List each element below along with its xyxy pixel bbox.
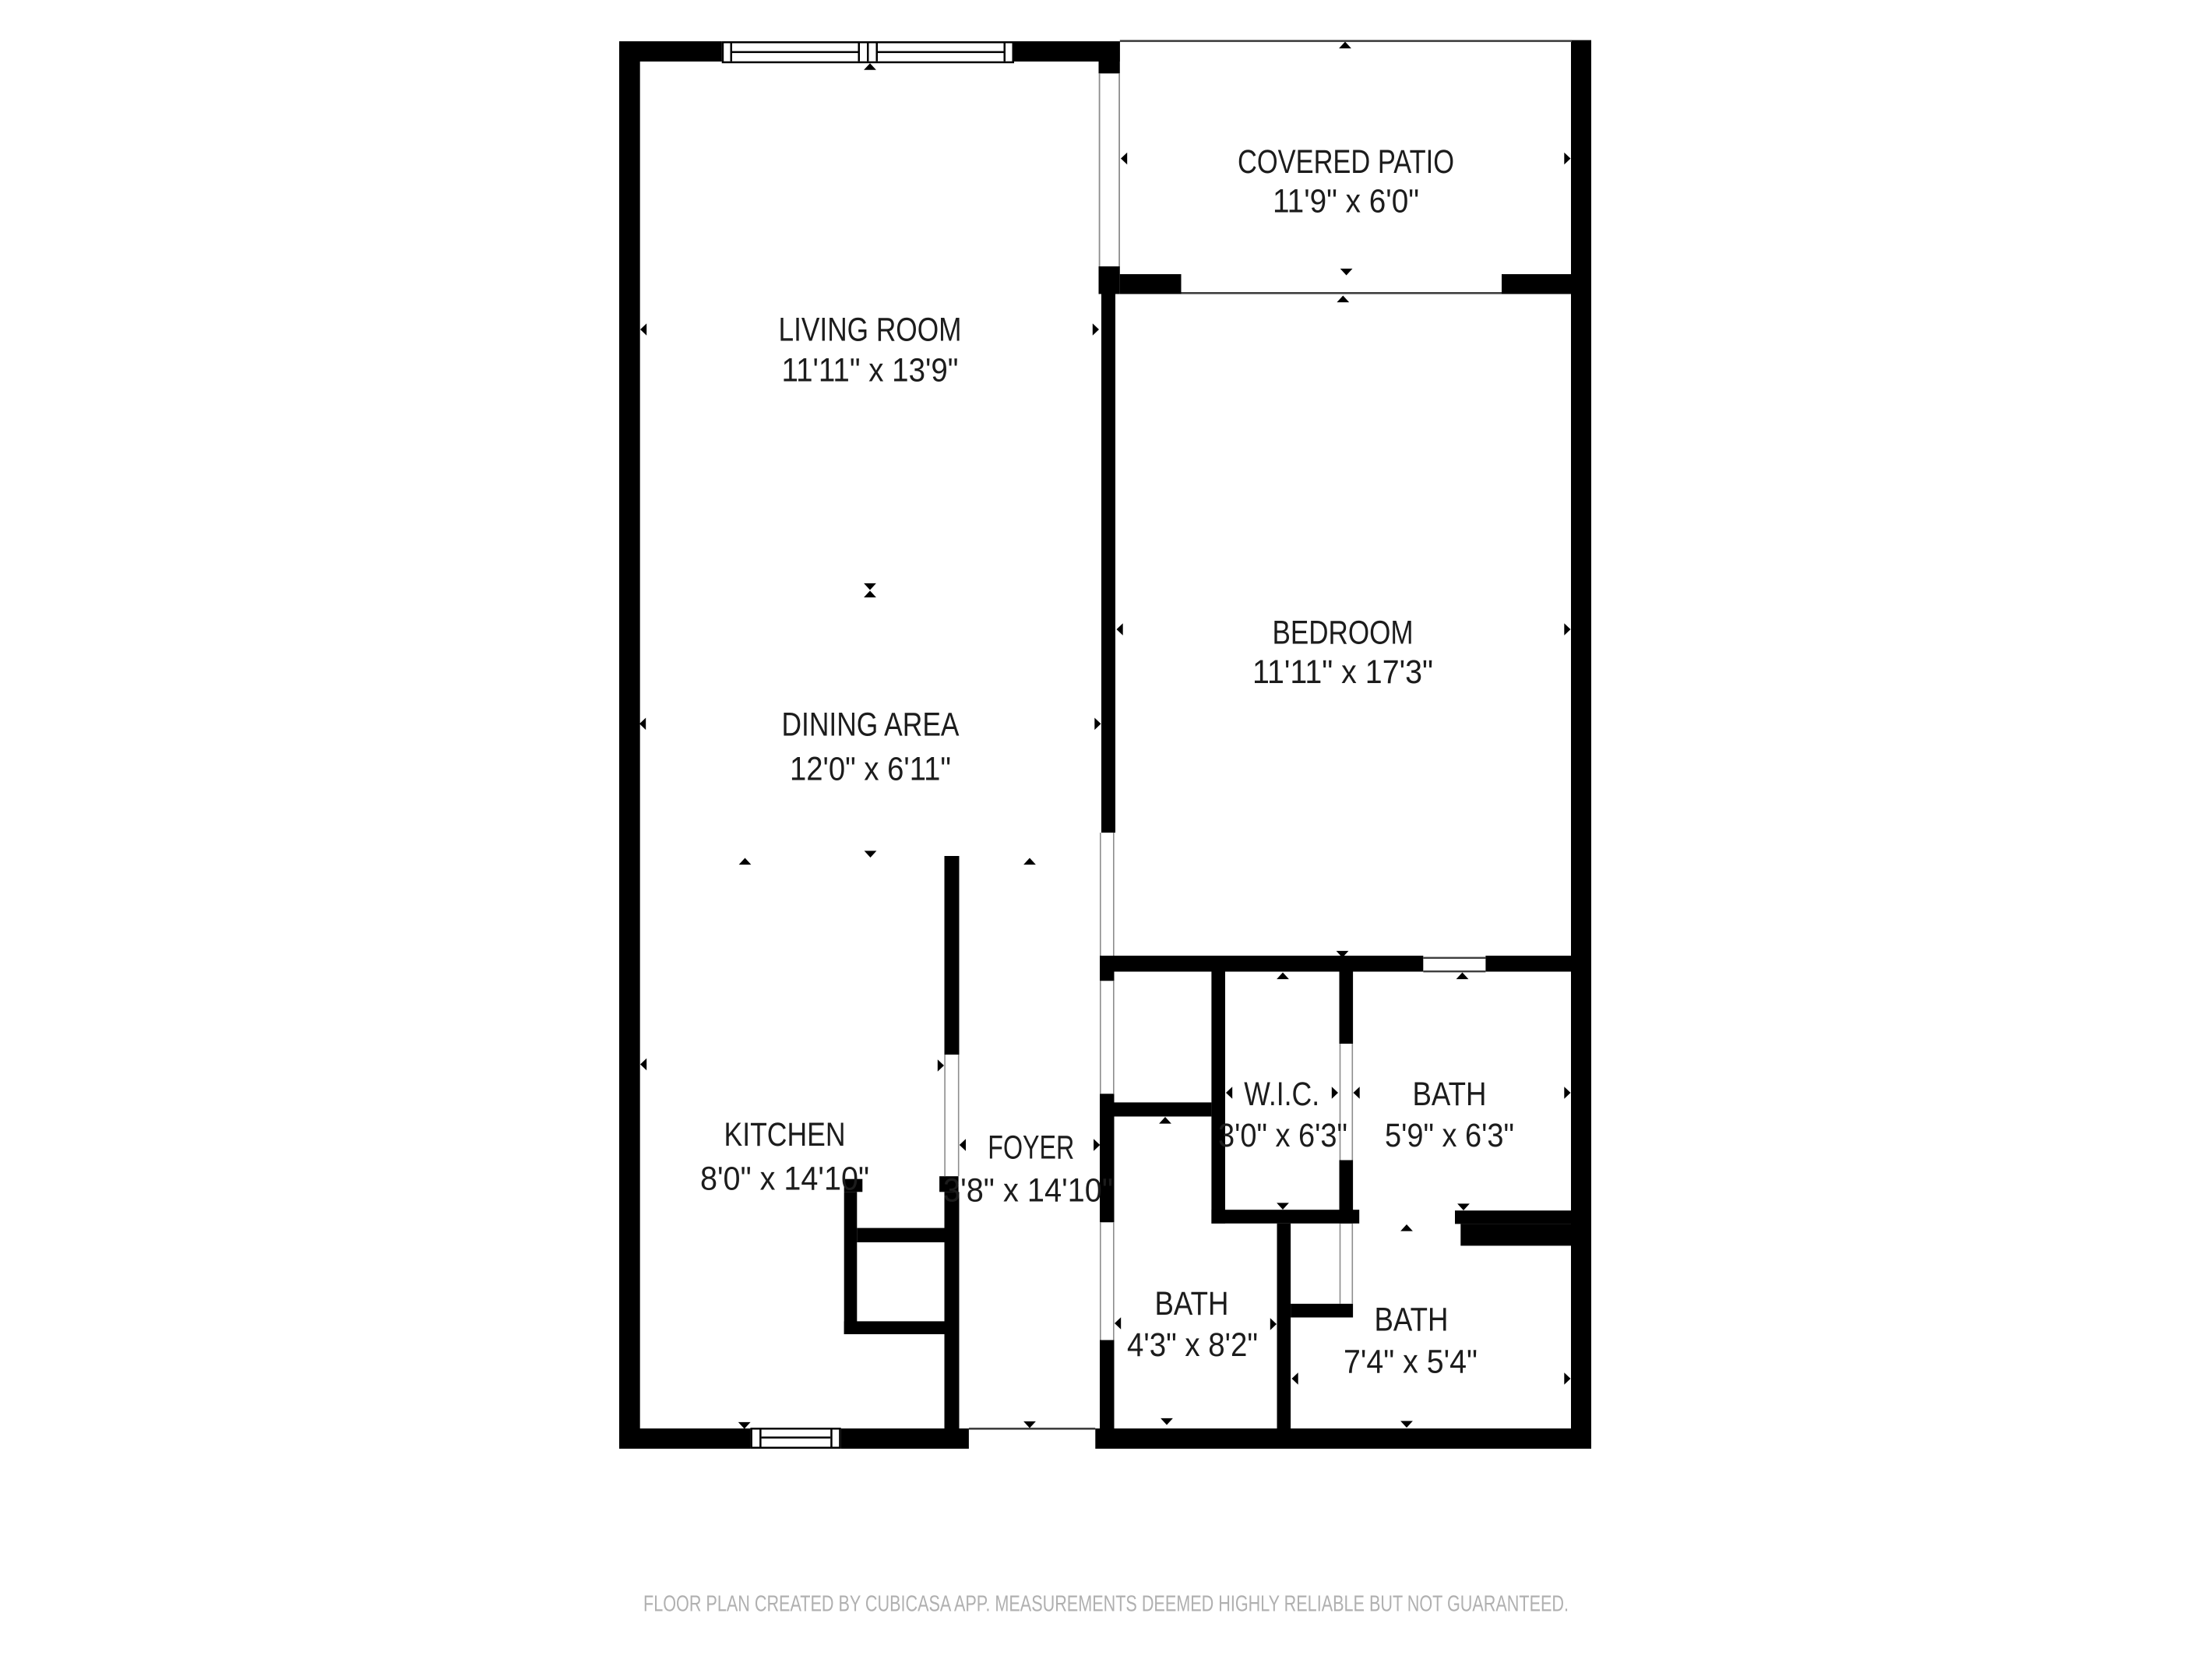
svg-text:8'0" x 14'10": 8'0" x 14'10"	[700, 1161, 869, 1198]
svg-text:BEDROOM: BEDROOM	[1273, 615, 1414, 652]
svg-text:BATH: BATH	[1413, 1076, 1487, 1113]
svg-text:COVERED PATIO: COVERED PATIO	[1238, 143, 1454, 181]
svg-text:7'4" x 5'4": 7'4" x 5'4"	[1344, 1344, 1478, 1381]
svg-text:W.I.C.: W.I.C.	[1244, 1076, 1319, 1113]
svg-text:3'8" x 14'10": 3'8" x 14'10"	[943, 1172, 1113, 1210]
svg-text:4'3" x 8'2": 4'3" x 8'2"	[1127, 1326, 1258, 1364]
svg-text:FOYER: FOYER	[988, 1129, 1074, 1167]
svg-text:DINING AREA: DINING AREA	[782, 706, 960, 744]
svg-text:11'9" x 6'0": 11'9" x 6'0"	[1273, 183, 1419, 220]
svg-text:KITCHEN: KITCHEN	[724, 1116, 846, 1154]
svg-text:5'9" x 6'3": 5'9" x 6'3"	[1385, 1117, 1514, 1154]
svg-text:11'11" x 17'3": 11'11" x 17'3"	[1252, 653, 1433, 691]
svg-text:LIVING ROOM: LIVING ROOM	[779, 312, 962, 349]
svg-text:BATH: BATH	[1155, 1285, 1229, 1323]
svg-text:FLOOR PLAN CREATED BY CUBICASA: FLOOR PLAN CREATED BY CUBICASA APP. MEAS…	[643, 1592, 1569, 1617]
svg-text:11'11" x 13'9": 11'11" x 13'9"	[782, 352, 959, 389]
svg-text:3'0" x 6'3": 3'0" x 6'3"	[1218, 1117, 1347, 1154]
svg-text:BATH: BATH	[1375, 1301, 1449, 1339]
svg-text:12'0" x 6'11": 12'0" x 6'11"	[790, 751, 951, 788]
